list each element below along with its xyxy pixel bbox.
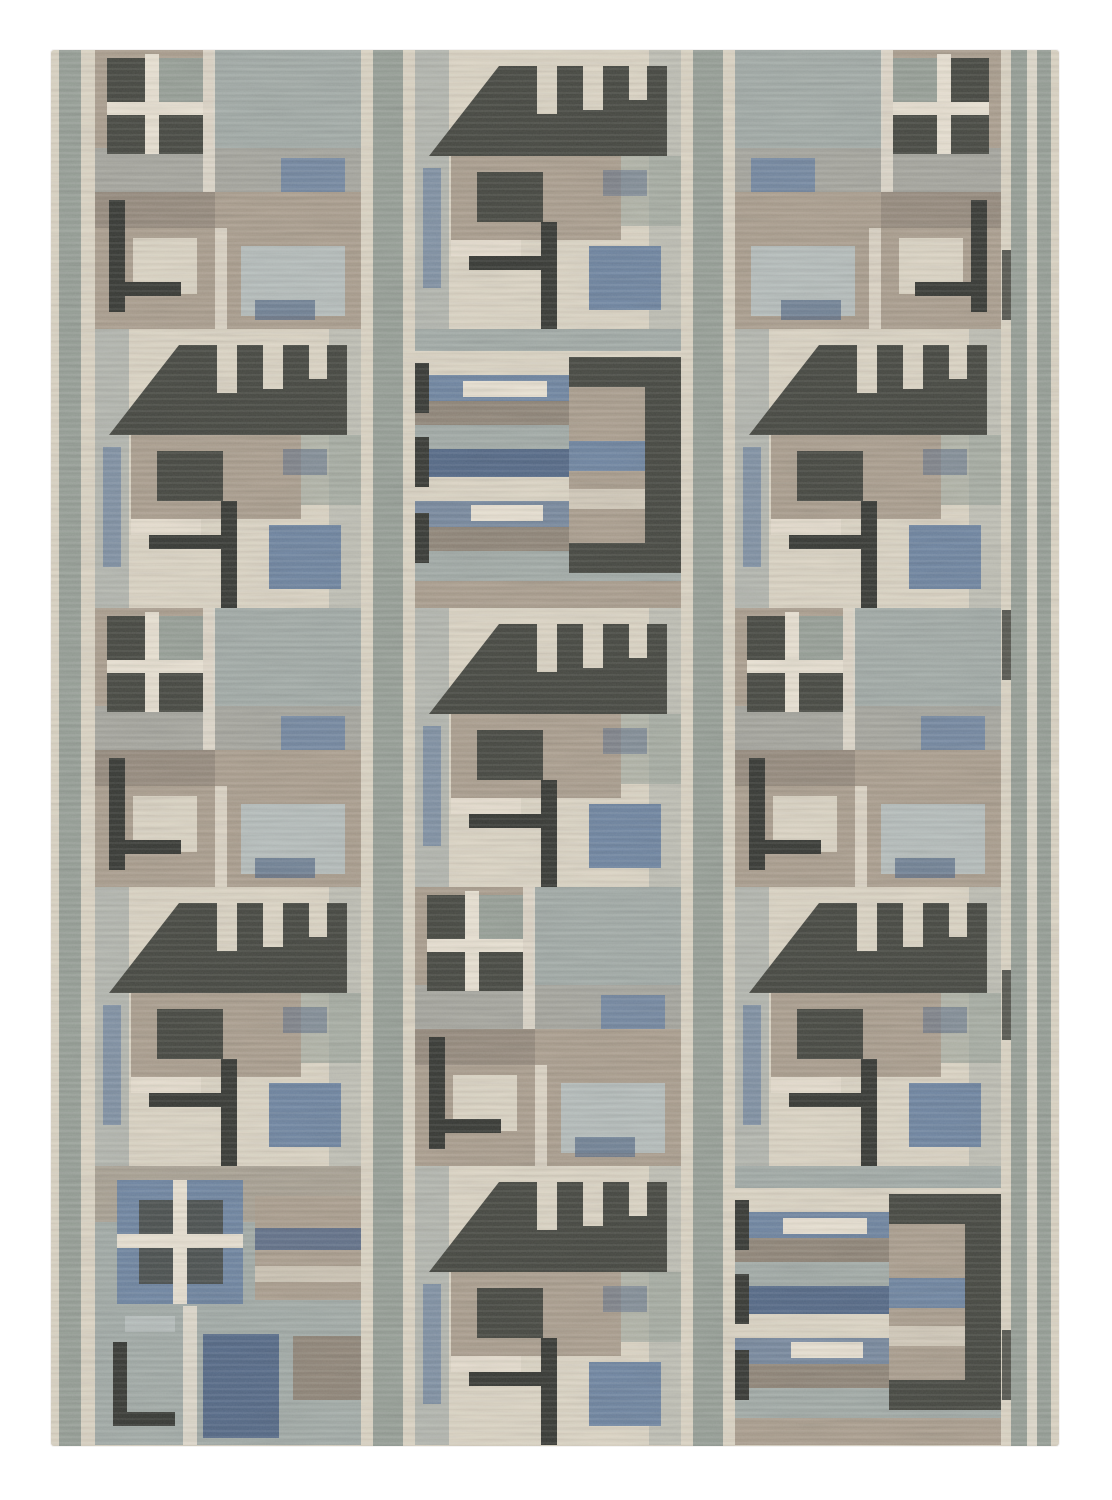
rug-photo	[51, 50, 1059, 1446]
weave-texture	[51, 50, 1059, 1446]
photo-canvas	[0, 0, 1112, 1500]
rug-image	[51, 50, 1059, 1446]
